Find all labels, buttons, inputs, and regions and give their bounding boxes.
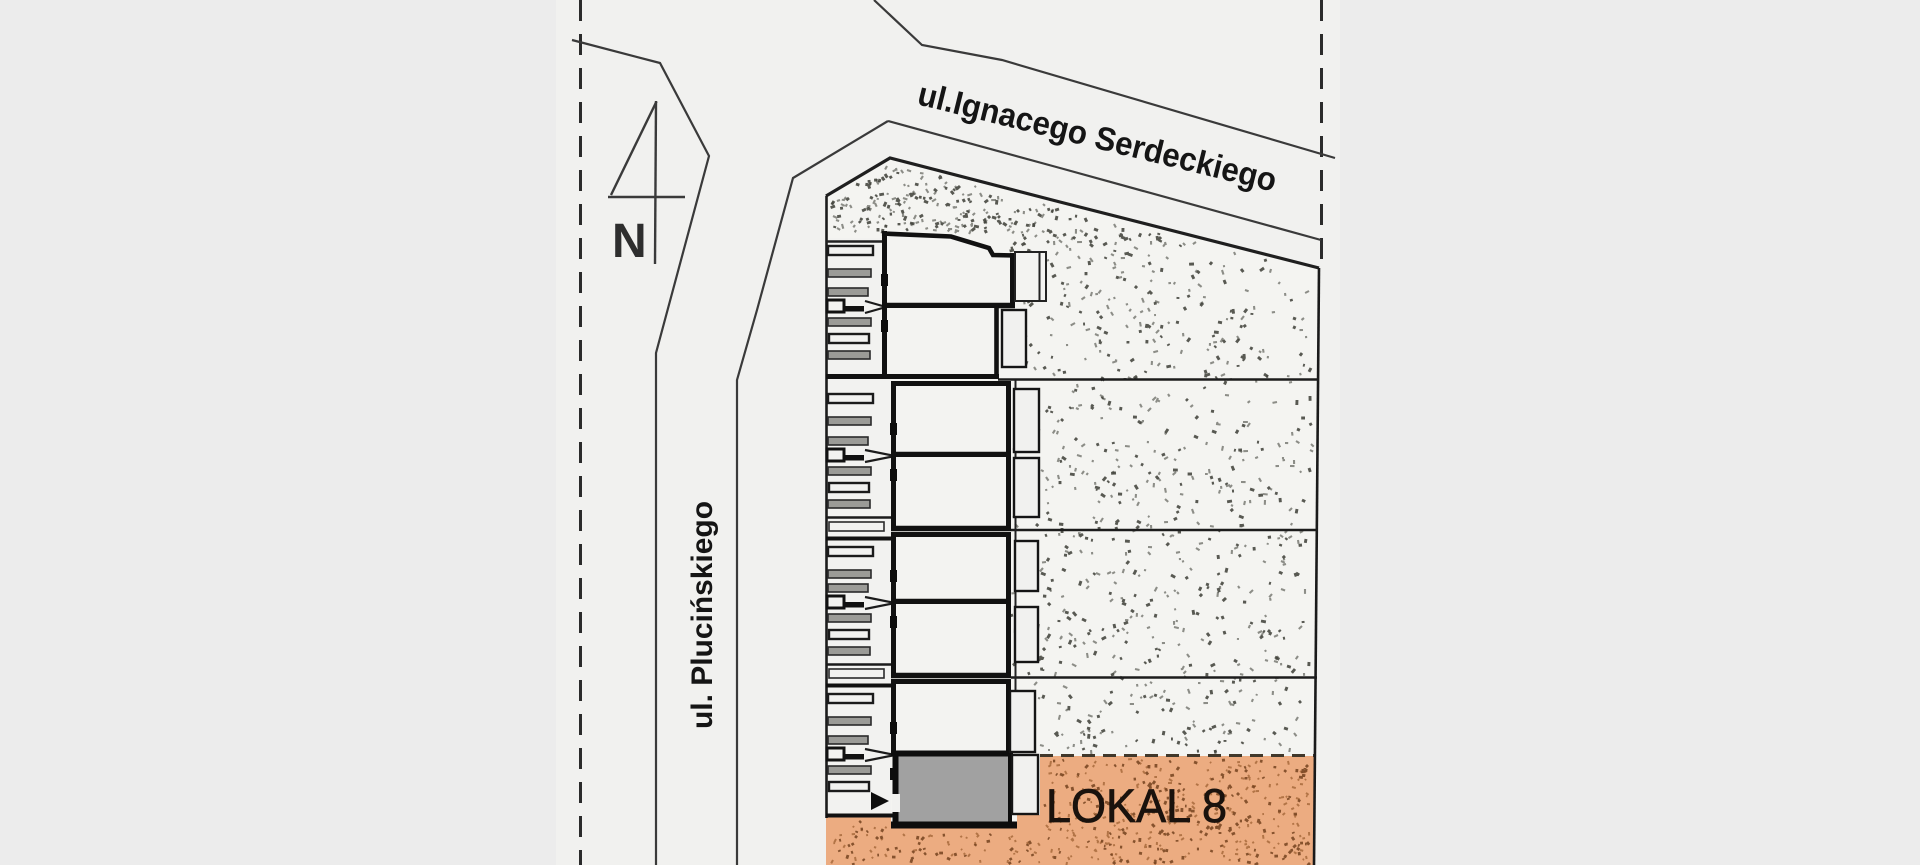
svg-text:N: N — [612, 215, 647, 268]
svg-text:LOKAL 8: LOKAL 8 — [1046, 779, 1227, 832]
svg-text:ul. Plucińskiego: ul. Plucińskiego — [686, 501, 719, 729]
